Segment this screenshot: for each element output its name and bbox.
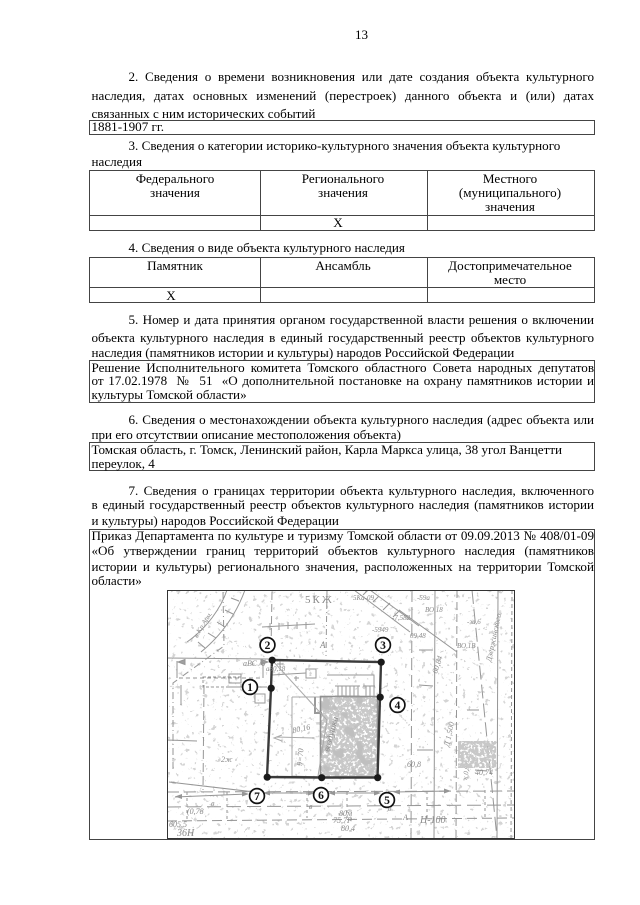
svg-text:40,74: 40,74 (475, 768, 493, 777)
svg-text:в: в (211, 799, 215, 808)
svg-text:в: в (388, 804, 392, 813)
svg-text:6: 6 (318, 790, 324, 802)
svg-text:2ж: 2ж (221, 755, 233, 764)
svg-text:-59а: -59а (417, 594, 430, 602)
svg-text:5Ка-09: 5Ка-09 (353, 594, 374, 602)
svg-text:60,8: 60,8 (407, 760, 421, 769)
svg-text:а80,18: а80,18 (266, 665, 286, 673)
svg-text:-5949: -5949 (372, 626, 389, 634)
svg-text:-за,6: -за,6 (467, 618, 481, 626)
svg-text:А: А (402, 813, 408, 822)
svg-text:(0,78: (0,78 (187, 807, 204, 816)
svg-text:Ц-100: Ц-100 (419, 815, 446, 826)
svg-text:ВО,18: ВО,18 (425, 606, 443, 614)
svg-text:в: в (309, 802, 313, 811)
svg-text:80,4: 80,4 (341, 824, 355, 833)
svg-text:7: 7 (254, 791, 260, 803)
svg-text:1: 1 (247, 682, 253, 694)
svg-text:4: 4 (395, 700, 401, 712)
svg-text:09,48: 09,48 (410, 632, 426, 640)
svg-text:аВС /6: аВС /6 (243, 659, 265, 668)
svg-text:А: А (319, 640, 326, 650)
svg-text:5КЖ: 5КЖ (305, 594, 334, 606)
svg-text:-7,582: -7,582 (392, 614, 411, 622)
svg-text:3: 3 (380, 640, 386, 652)
svg-text:9=70: 9=70 (295, 748, 305, 766)
svg-text:36Н: 36Н (176, 828, 195, 839)
svg-text:ВО,1В: ВО,1В (457, 642, 476, 650)
svg-text:2: 2 (265, 640, 271, 652)
